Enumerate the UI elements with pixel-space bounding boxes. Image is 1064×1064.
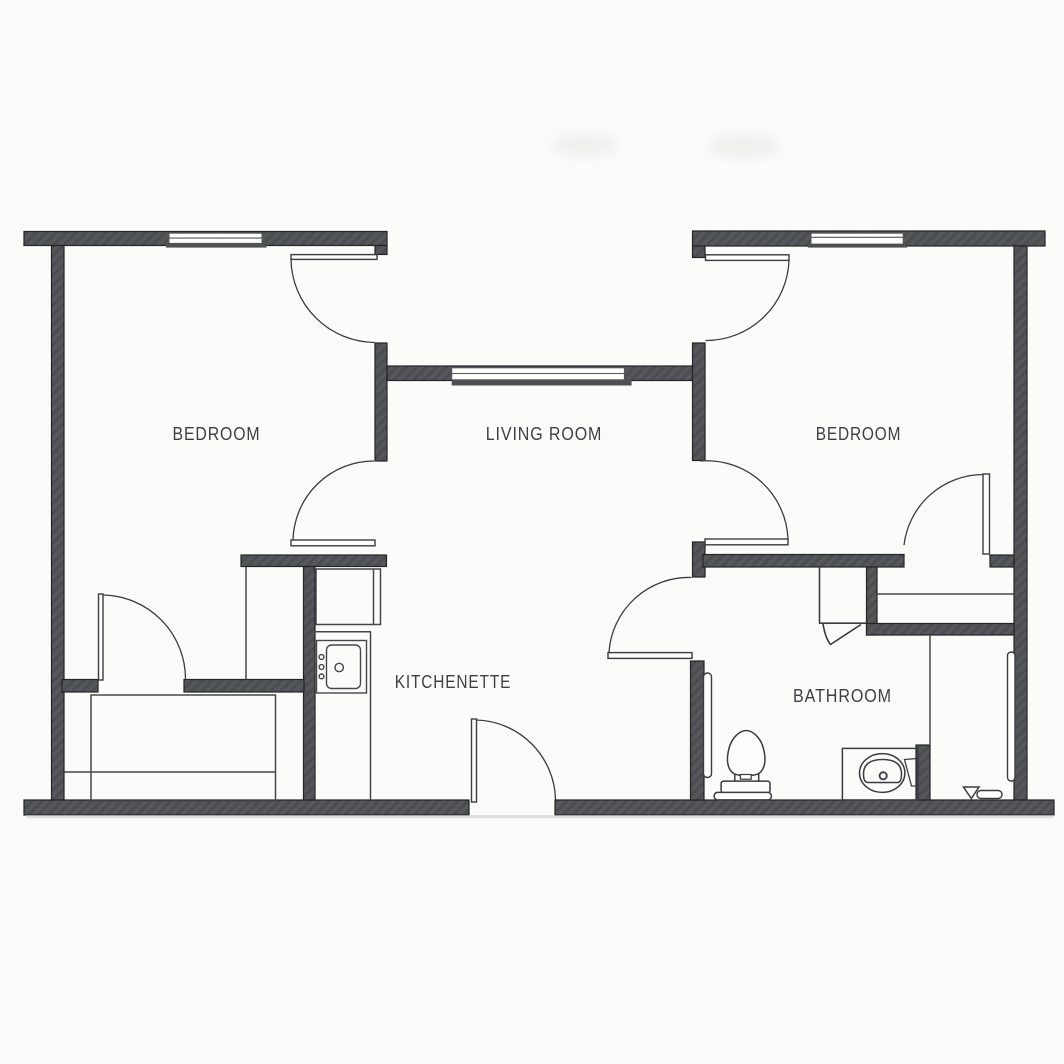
svg-text:LIVING ROOM: LIVING ROOM xyxy=(486,424,603,444)
svg-text:BATHROOM: BATHROOM xyxy=(793,686,892,706)
svg-text:BEDROOM: BEDROOM xyxy=(173,424,261,444)
svg-text:BEDROOM: BEDROOM xyxy=(816,424,902,444)
svg-text:KITCHENETTE: KITCHENETTE xyxy=(395,672,512,692)
